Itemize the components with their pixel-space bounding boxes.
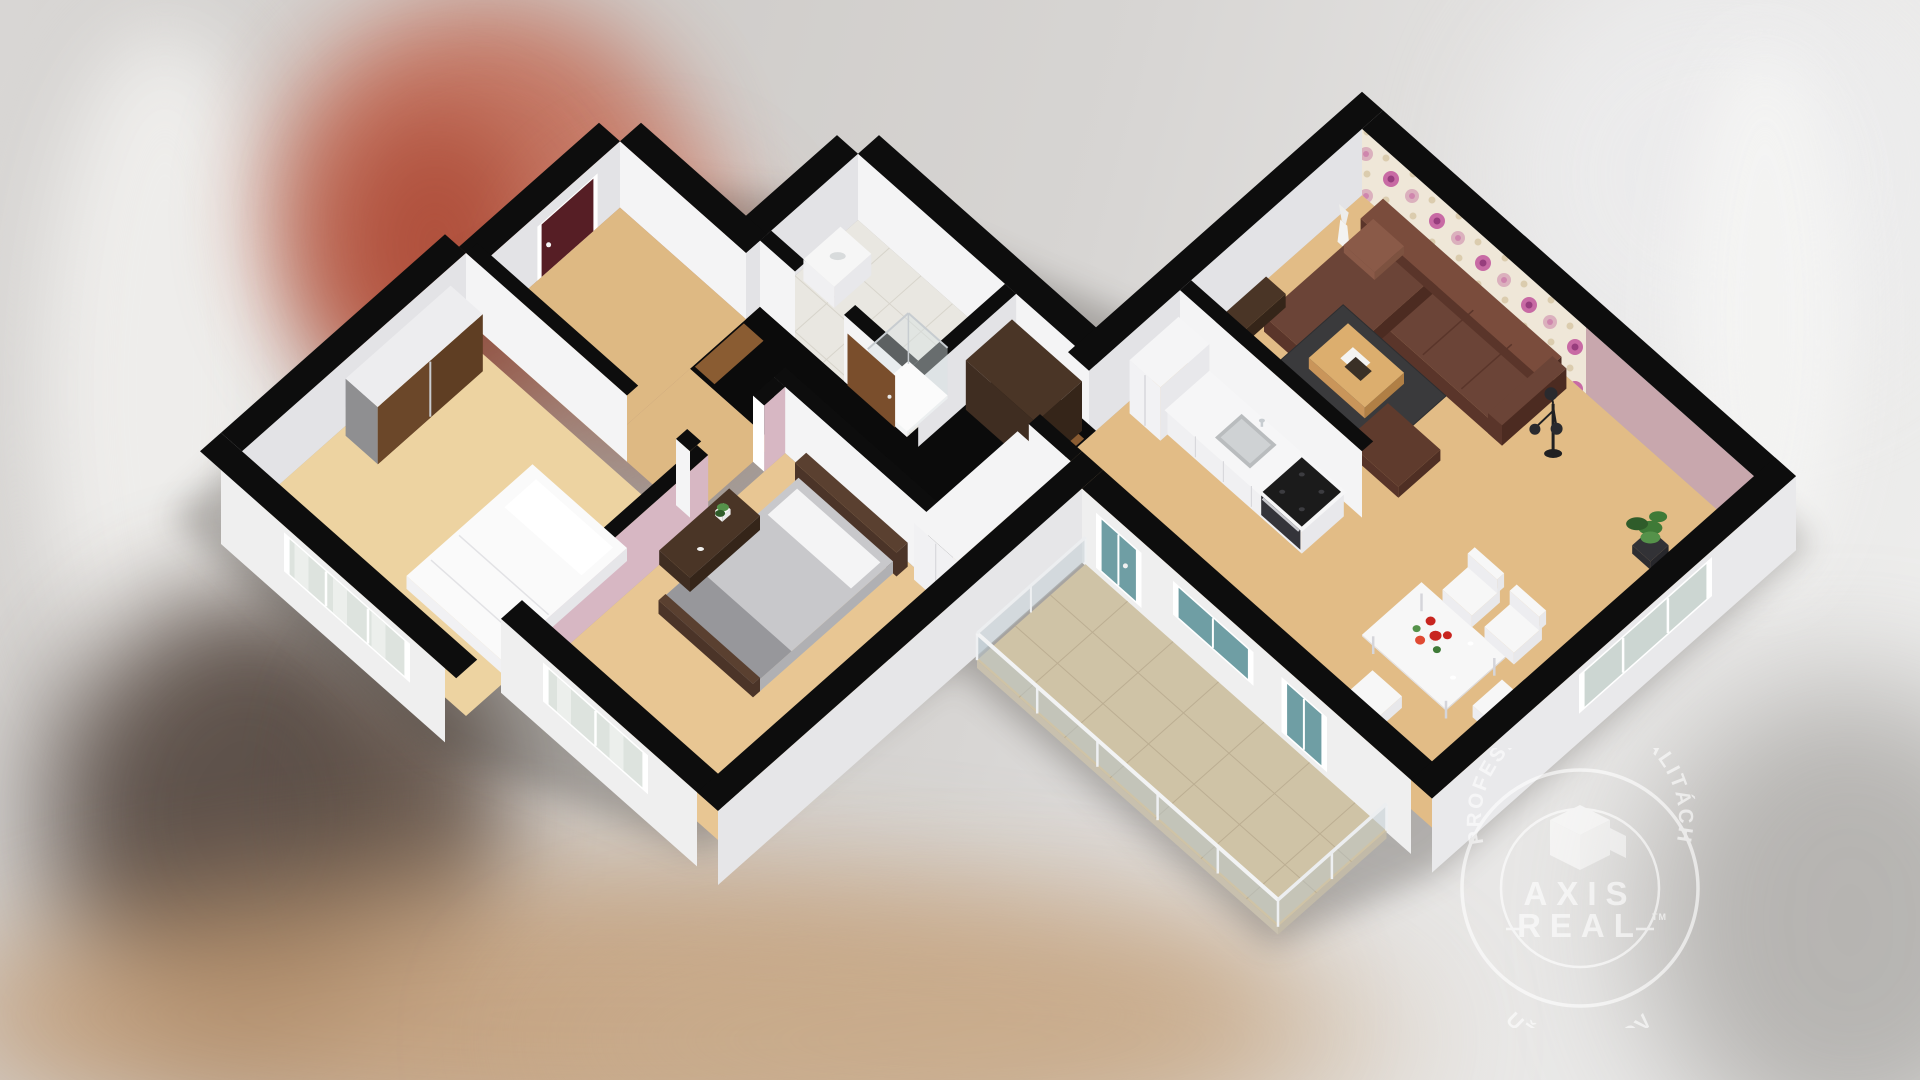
burner bbox=[1318, 490, 1324, 494]
burner bbox=[1279, 490, 1285, 494]
kitchen-faucet bbox=[1259, 419, 1265, 423]
wall-bedroom1-ne bbox=[676, 439, 690, 518]
floorplan-image: PROFESIONÁLI V REALITÁCH AXIS REAL TM UŽ… bbox=[0, 0, 1920, 1080]
floor-lamp-globe bbox=[1545, 387, 1558, 400]
watermark-tm: TM bbox=[1652, 912, 1667, 922]
red-flowers bbox=[1430, 631, 1442, 641]
plant-leaves bbox=[1640, 532, 1660, 544]
bedroom2-door-jamb bbox=[753, 396, 764, 472]
watermark-stamp: PROFESIONÁLI V REALITÁCH AXIS REAL TM UŽ… bbox=[1440, 748, 1720, 1028]
burner bbox=[1299, 472, 1305, 476]
dresser-deco bbox=[697, 547, 704, 551]
axis-real-building-logo bbox=[1550, 805, 1626, 870]
red-flowers bbox=[1415, 636, 1425, 645]
bath-sink-basin bbox=[830, 252, 846, 260]
watermark-brand-real: REAL bbox=[1517, 907, 1643, 944]
watermark-arc-bottom-text: UŽ 20 ROKOV bbox=[1501, 1008, 1658, 1028]
plant-leaves bbox=[1626, 517, 1648, 530]
floor-lamp-globe bbox=[1529, 424, 1540, 435]
burner bbox=[1299, 507, 1305, 511]
plant-leaves bbox=[1649, 511, 1667, 522]
table-cup bbox=[1450, 676, 1456, 680]
flower-greens bbox=[1413, 625, 1421, 632]
table-cup bbox=[1468, 642, 1474, 646]
flower-greens bbox=[1433, 646, 1441, 653]
door-handle bbox=[888, 395, 892, 399]
red-flowers bbox=[1443, 631, 1452, 639]
entry-door-handle bbox=[546, 242, 551, 247]
watermark-axis-real: PROFESIONÁLI V REALITÁCH AXIS REAL TM UŽ… bbox=[1440, 748, 1720, 1028]
balcony-door-handle bbox=[1123, 563, 1128, 568]
floor-lamp-globe bbox=[1551, 423, 1563, 435]
red-flowers bbox=[1426, 617, 1436, 626]
dresser-plant bbox=[715, 510, 725, 517]
